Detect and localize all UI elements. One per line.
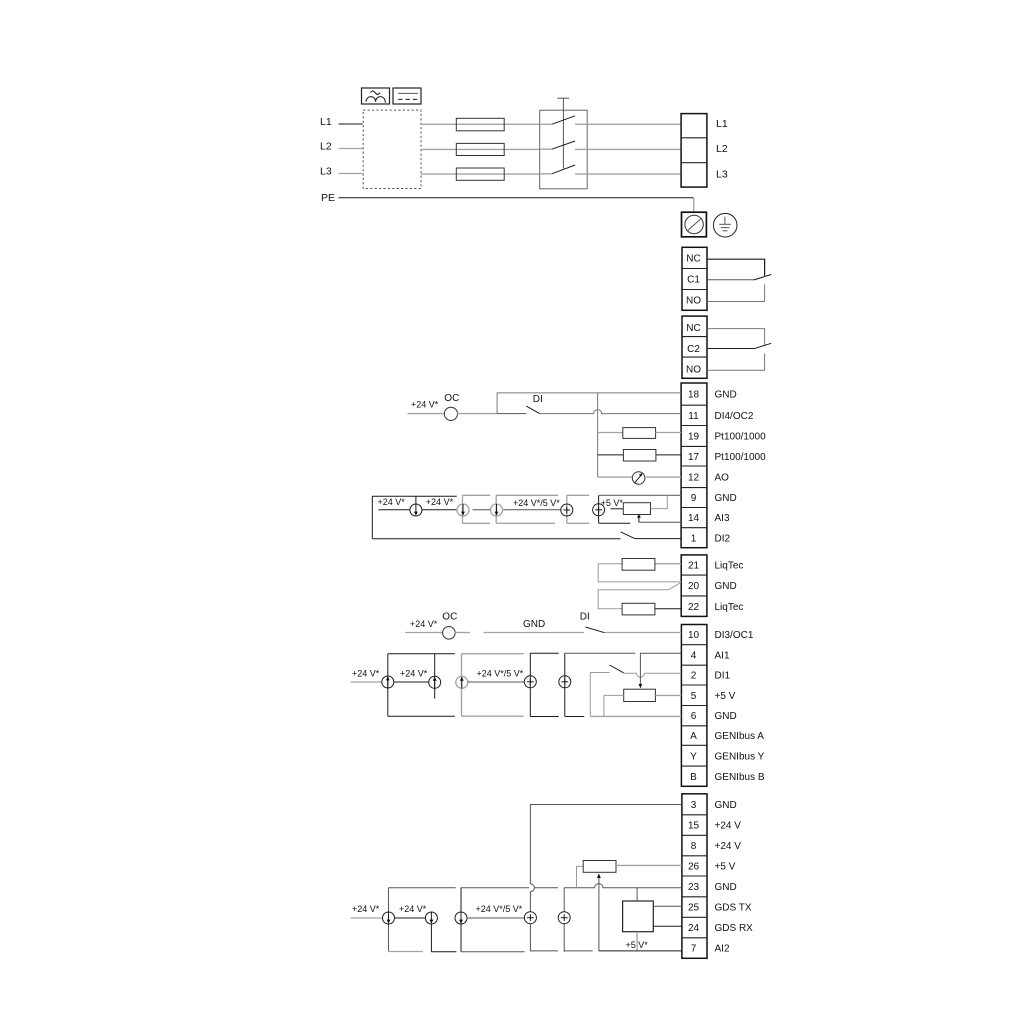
svg-text:Y: Y xyxy=(690,751,697,762)
svg-text:+24 V*: +24 V* xyxy=(411,400,439,410)
svg-text:2: 2 xyxy=(691,671,697,682)
svg-text:GND: GND xyxy=(715,711,737,722)
svg-text:L1: L1 xyxy=(320,116,332,128)
svg-text:DI3/OC1: DI3/OC1 xyxy=(715,630,754,641)
svg-text:GENIbus Y: GENIbus Y xyxy=(715,751,765,762)
svg-text:GND: GND xyxy=(523,619,545,630)
svg-text:3: 3 xyxy=(691,800,697,811)
svg-text:DI: DI xyxy=(533,394,543,405)
svg-text:21: 21 xyxy=(688,561,700,572)
svg-text:24: 24 xyxy=(688,923,700,934)
svg-text:DI2: DI2 xyxy=(715,533,731,544)
svg-text:+24 V: +24 V xyxy=(715,841,742,852)
svg-text:+24 V: +24 V xyxy=(715,821,742,832)
svg-text:20: 20 xyxy=(688,581,700,592)
svg-text:18: 18 xyxy=(688,390,700,401)
svg-text:DI4/OC2: DI4/OC2 xyxy=(715,411,754,422)
svg-text:Pt100/1000: Pt100/1000 xyxy=(715,452,767,463)
svg-text:14: 14 xyxy=(688,513,700,524)
svg-text:GND: GND xyxy=(715,493,737,504)
svg-text:+24 V*/5 V*: +24 V*/5 V* xyxy=(476,904,523,914)
svg-text:11: 11 xyxy=(688,411,699,422)
svg-text:PE: PE xyxy=(321,192,335,204)
svg-text:8: 8 xyxy=(691,841,697,852)
svg-text:L3: L3 xyxy=(716,168,728,180)
svg-text:4: 4 xyxy=(691,651,697,662)
svg-text:+24 V*: +24 V* xyxy=(378,497,406,507)
svg-text:+24 V*: +24 V* xyxy=(352,668,380,678)
svg-text:17: 17 xyxy=(688,452,700,463)
svg-text:26: 26 xyxy=(688,862,700,873)
svg-text:GENIbus A: GENIbus A xyxy=(715,731,765,742)
svg-text:AI3: AI3 xyxy=(715,513,730,524)
svg-text:OC: OC xyxy=(444,393,459,404)
svg-text:22: 22 xyxy=(688,602,700,613)
svg-text:AI1: AI1 xyxy=(715,651,730,662)
svg-text:+24 V*: +24 V* xyxy=(400,668,428,678)
svg-text:AI2: AI2 xyxy=(715,944,730,955)
svg-text:GDS TX: GDS TX xyxy=(715,903,752,914)
svg-text:L2: L2 xyxy=(320,140,332,152)
svg-text:+24 V*: +24 V* xyxy=(352,904,380,914)
svg-text:10: 10 xyxy=(688,630,700,641)
svg-text:+5 V: +5 V xyxy=(715,691,736,702)
svg-text:A: A xyxy=(690,731,697,742)
svg-text:12: 12 xyxy=(688,472,700,483)
svg-text:NC: NC xyxy=(686,323,700,334)
svg-text:NO: NO xyxy=(686,365,701,376)
svg-text:NC: NC xyxy=(686,254,700,265)
svg-text:5: 5 xyxy=(691,691,697,702)
svg-text:+24 V*: +24 V* xyxy=(399,904,427,914)
svg-text:7: 7 xyxy=(691,944,697,955)
svg-text:AO: AO xyxy=(715,472,730,483)
svg-text:GND: GND xyxy=(715,581,737,592)
svg-text:DI: DI xyxy=(580,611,590,622)
svg-text:C2: C2 xyxy=(687,344,700,355)
svg-text:GND: GND xyxy=(715,390,737,401)
svg-text:+24 V*: +24 V* xyxy=(426,497,454,507)
svg-text:L3: L3 xyxy=(320,165,332,177)
svg-text:19: 19 xyxy=(688,432,700,443)
svg-text:GDS RX: GDS RX xyxy=(715,923,754,934)
svg-text:GND: GND xyxy=(715,882,737,893)
svg-text:L2: L2 xyxy=(716,143,728,155)
svg-text:+24 V*/5 V*: +24 V*/5 V* xyxy=(513,498,560,508)
svg-text:L1: L1 xyxy=(716,118,728,130)
svg-text:+5 V: +5 V xyxy=(715,862,736,873)
svg-text:GENIbus B: GENIbus B xyxy=(715,772,765,783)
svg-text:OC: OC xyxy=(442,612,457,623)
svg-text:LiqTec: LiqTec xyxy=(715,602,744,613)
svg-text:C1: C1 xyxy=(687,275,700,286)
svg-text:B: B xyxy=(690,772,697,783)
svg-text:GND: GND xyxy=(715,800,737,811)
svg-text:23: 23 xyxy=(688,882,700,893)
svg-text:1: 1 xyxy=(691,533,697,544)
svg-text:6: 6 xyxy=(691,711,697,722)
svg-text:+24 V*: +24 V* xyxy=(410,619,438,629)
svg-text:LiqTec: LiqTec xyxy=(715,561,744,572)
svg-text:NO: NO xyxy=(686,296,701,307)
svg-text:DI1: DI1 xyxy=(715,671,731,682)
svg-text:25: 25 xyxy=(688,903,700,914)
svg-text:15: 15 xyxy=(688,821,700,832)
svg-text:Pt100/1000: Pt100/1000 xyxy=(715,432,767,443)
svg-text:+24 V*/5 V*: +24 V*/5 V* xyxy=(477,668,524,678)
svg-text:9: 9 xyxy=(691,493,697,504)
